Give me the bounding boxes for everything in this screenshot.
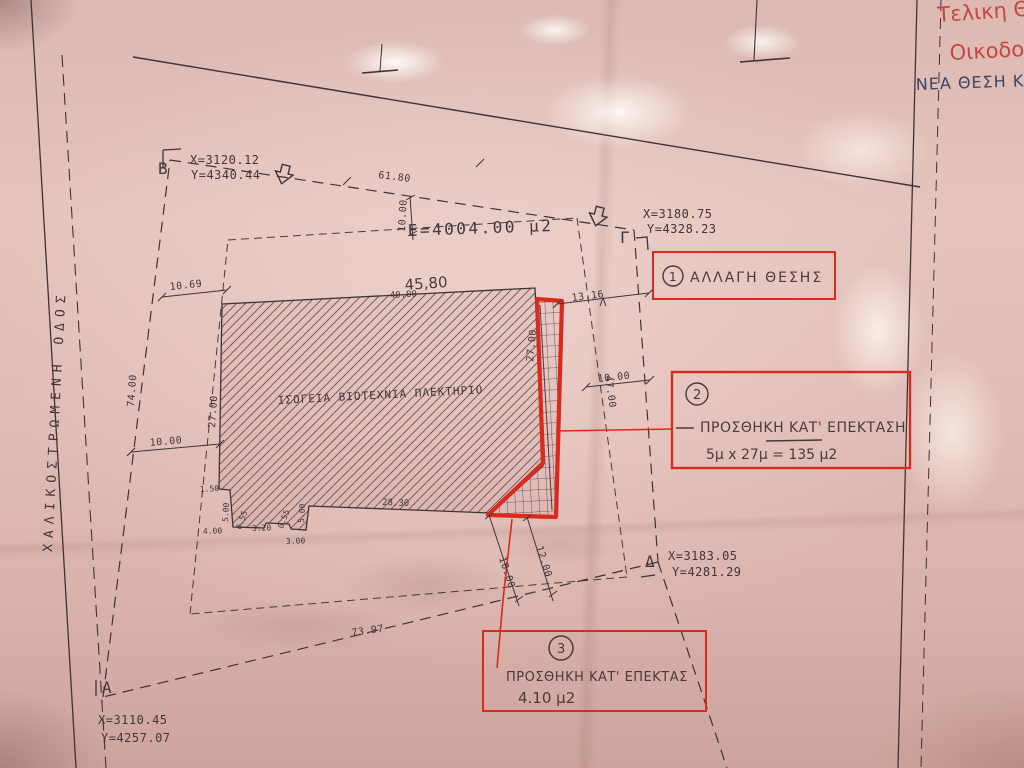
boundary-arrows xyxy=(273,163,609,228)
dim-12-00: 12.00 xyxy=(533,545,554,579)
annotation-extension-side: 2 ΠΡΟΣΘΗΚΗ ΚΑΤ' ΕΠΕΚΤΑΣΗ 5μ x 27μ = 135 … xyxy=(672,372,910,468)
corner-mark-d xyxy=(641,575,655,577)
annotation-2-number: 2 xyxy=(693,388,701,403)
underline xyxy=(766,440,822,441)
annotation-2-title: ΠΡΟΣΘΗΚΗ ΚΑΤ' ΕΠΕΚΤΑΣΗ xyxy=(700,420,906,436)
dim-5-00-a: 5.00 xyxy=(221,502,231,522)
dim-73-97: 73.97 xyxy=(351,624,385,639)
boundary-extension xyxy=(658,562,727,768)
corner-mark-g xyxy=(636,237,648,250)
annotation-extension-bottom: 3 ΠΡΟΣΘΗΚΗ ΚΑΤ' ΕΠΕΚΤΑΣ 4.10 μ2 xyxy=(483,631,706,711)
right-edge-dashed-line xyxy=(921,0,941,768)
plan-canvas: 61.80 10.00 45,80 40.00 13.16 10.69 74.0… xyxy=(0,0,1024,768)
red-leader-right xyxy=(556,429,673,431)
point-d-x: X=3183.05 xyxy=(668,549,738,563)
point-g-y: Y=4328.23 xyxy=(647,222,717,236)
tick-mark-right xyxy=(740,58,790,62)
annotation-3-title: ΠΡΟΣΘΗΚΗ ΚΑΤ' ΕΠΕΚΤΑΣ xyxy=(506,670,688,685)
point-a-label: A xyxy=(102,678,112,697)
dim-74-00: 74.00 xyxy=(126,374,139,407)
dim-28-30: 28.30 xyxy=(382,498,409,509)
area-label: E=4004.00 μ2 xyxy=(407,216,553,240)
dim-10-00-left: 10.00 xyxy=(149,435,182,449)
dim-61-80: 61.80 xyxy=(378,170,412,185)
tick-stem xyxy=(380,44,382,71)
right-edge-line xyxy=(898,0,917,768)
point-a-y: Y=4257.07 xyxy=(101,731,171,745)
point-b-y: Y=4340.44 xyxy=(191,168,261,182)
envelope-right xyxy=(577,218,627,577)
dim-10-00-diag: 10.00 xyxy=(496,556,517,590)
annotation-change-position: 1 ΑΛΛΑΓΗ ΘΕΣΗΣ xyxy=(653,252,835,299)
boundary-a-to-b xyxy=(103,160,170,697)
dim-13-16: 13.16 xyxy=(571,289,605,304)
down-arrow-icon xyxy=(587,205,609,228)
down-arrow-icon xyxy=(273,163,295,186)
boundary-g-to-d xyxy=(634,230,658,562)
building-footprint xyxy=(219,288,543,530)
dim-3-20: 3.20 xyxy=(252,523,272,533)
road-label: ΧΑΛΙΚΟΣΤΡΩΜΕΝΗ ΟΔΟΣ xyxy=(41,289,70,552)
handwriting-blue-line1: ΝΕΑ ΘΕΣΗ Κ xyxy=(915,71,1024,94)
top-fold-line xyxy=(754,0,757,60)
annotation-1-number: 1 xyxy=(669,270,677,284)
envelope-bottom xyxy=(190,577,627,614)
point-d-label: Δ xyxy=(645,552,655,571)
red-leader-down xyxy=(497,519,512,668)
dim-3-00: 3.00 xyxy=(286,536,306,546)
point-g-label: Γ xyxy=(620,228,630,247)
annotation-1-text: ΑΛΛΑΓΗ ΘΕΣΗΣ xyxy=(690,270,823,286)
annotation-3-calc: 4.10 μ2 xyxy=(518,689,575,707)
point-g-x: X=3180.75 xyxy=(643,207,713,221)
point-a-x: X=3110.45 xyxy=(98,713,168,727)
handwriting-red-line1: Τελικη Θ xyxy=(936,0,1024,27)
dim-5-00-b: 5.00 xyxy=(297,503,307,523)
dim-4-00: 4.00 xyxy=(203,526,223,536)
point-b-label: B xyxy=(158,159,168,178)
dim-10-69: 10.69 xyxy=(169,279,203,293)
point-d-y: Y=4281.29 xyxy=(672,565,742,579)
dim-27-00-left: 27.00 xyxy=(207,395,220,428)
point-b-x: X=3120.12 xyxy=(190,153,260,167)
handwritten-notes: Τελικη Θ Οικοδομ ΝΕΑ ΘΕΣΗ Κ xyxy=(915,0,1024,94)
handwriting-red-line2: Οικοδομ xyxy=(949,36,1024,65)
ticks-61-80 xyxy=(343,159,484,185)
dim-40-00: 40.00 xyxy=(390,290,418,301)
annotation-2-calc: 5μ x 27μ = 135 μ2 xyxy=(706,447,837,463)
dim-1-50: 1.50 xyxy=(200,484,220,494)
annotation-3-number: 3 xyxy=(557,642,565,657)
road-dashed-line xyxy=(62,55,106,768)
site-plan-photo: 61.80 10.00 45,80 40.00 13.16 10.69 74.0… xyxy=(0,0,1024,768)
